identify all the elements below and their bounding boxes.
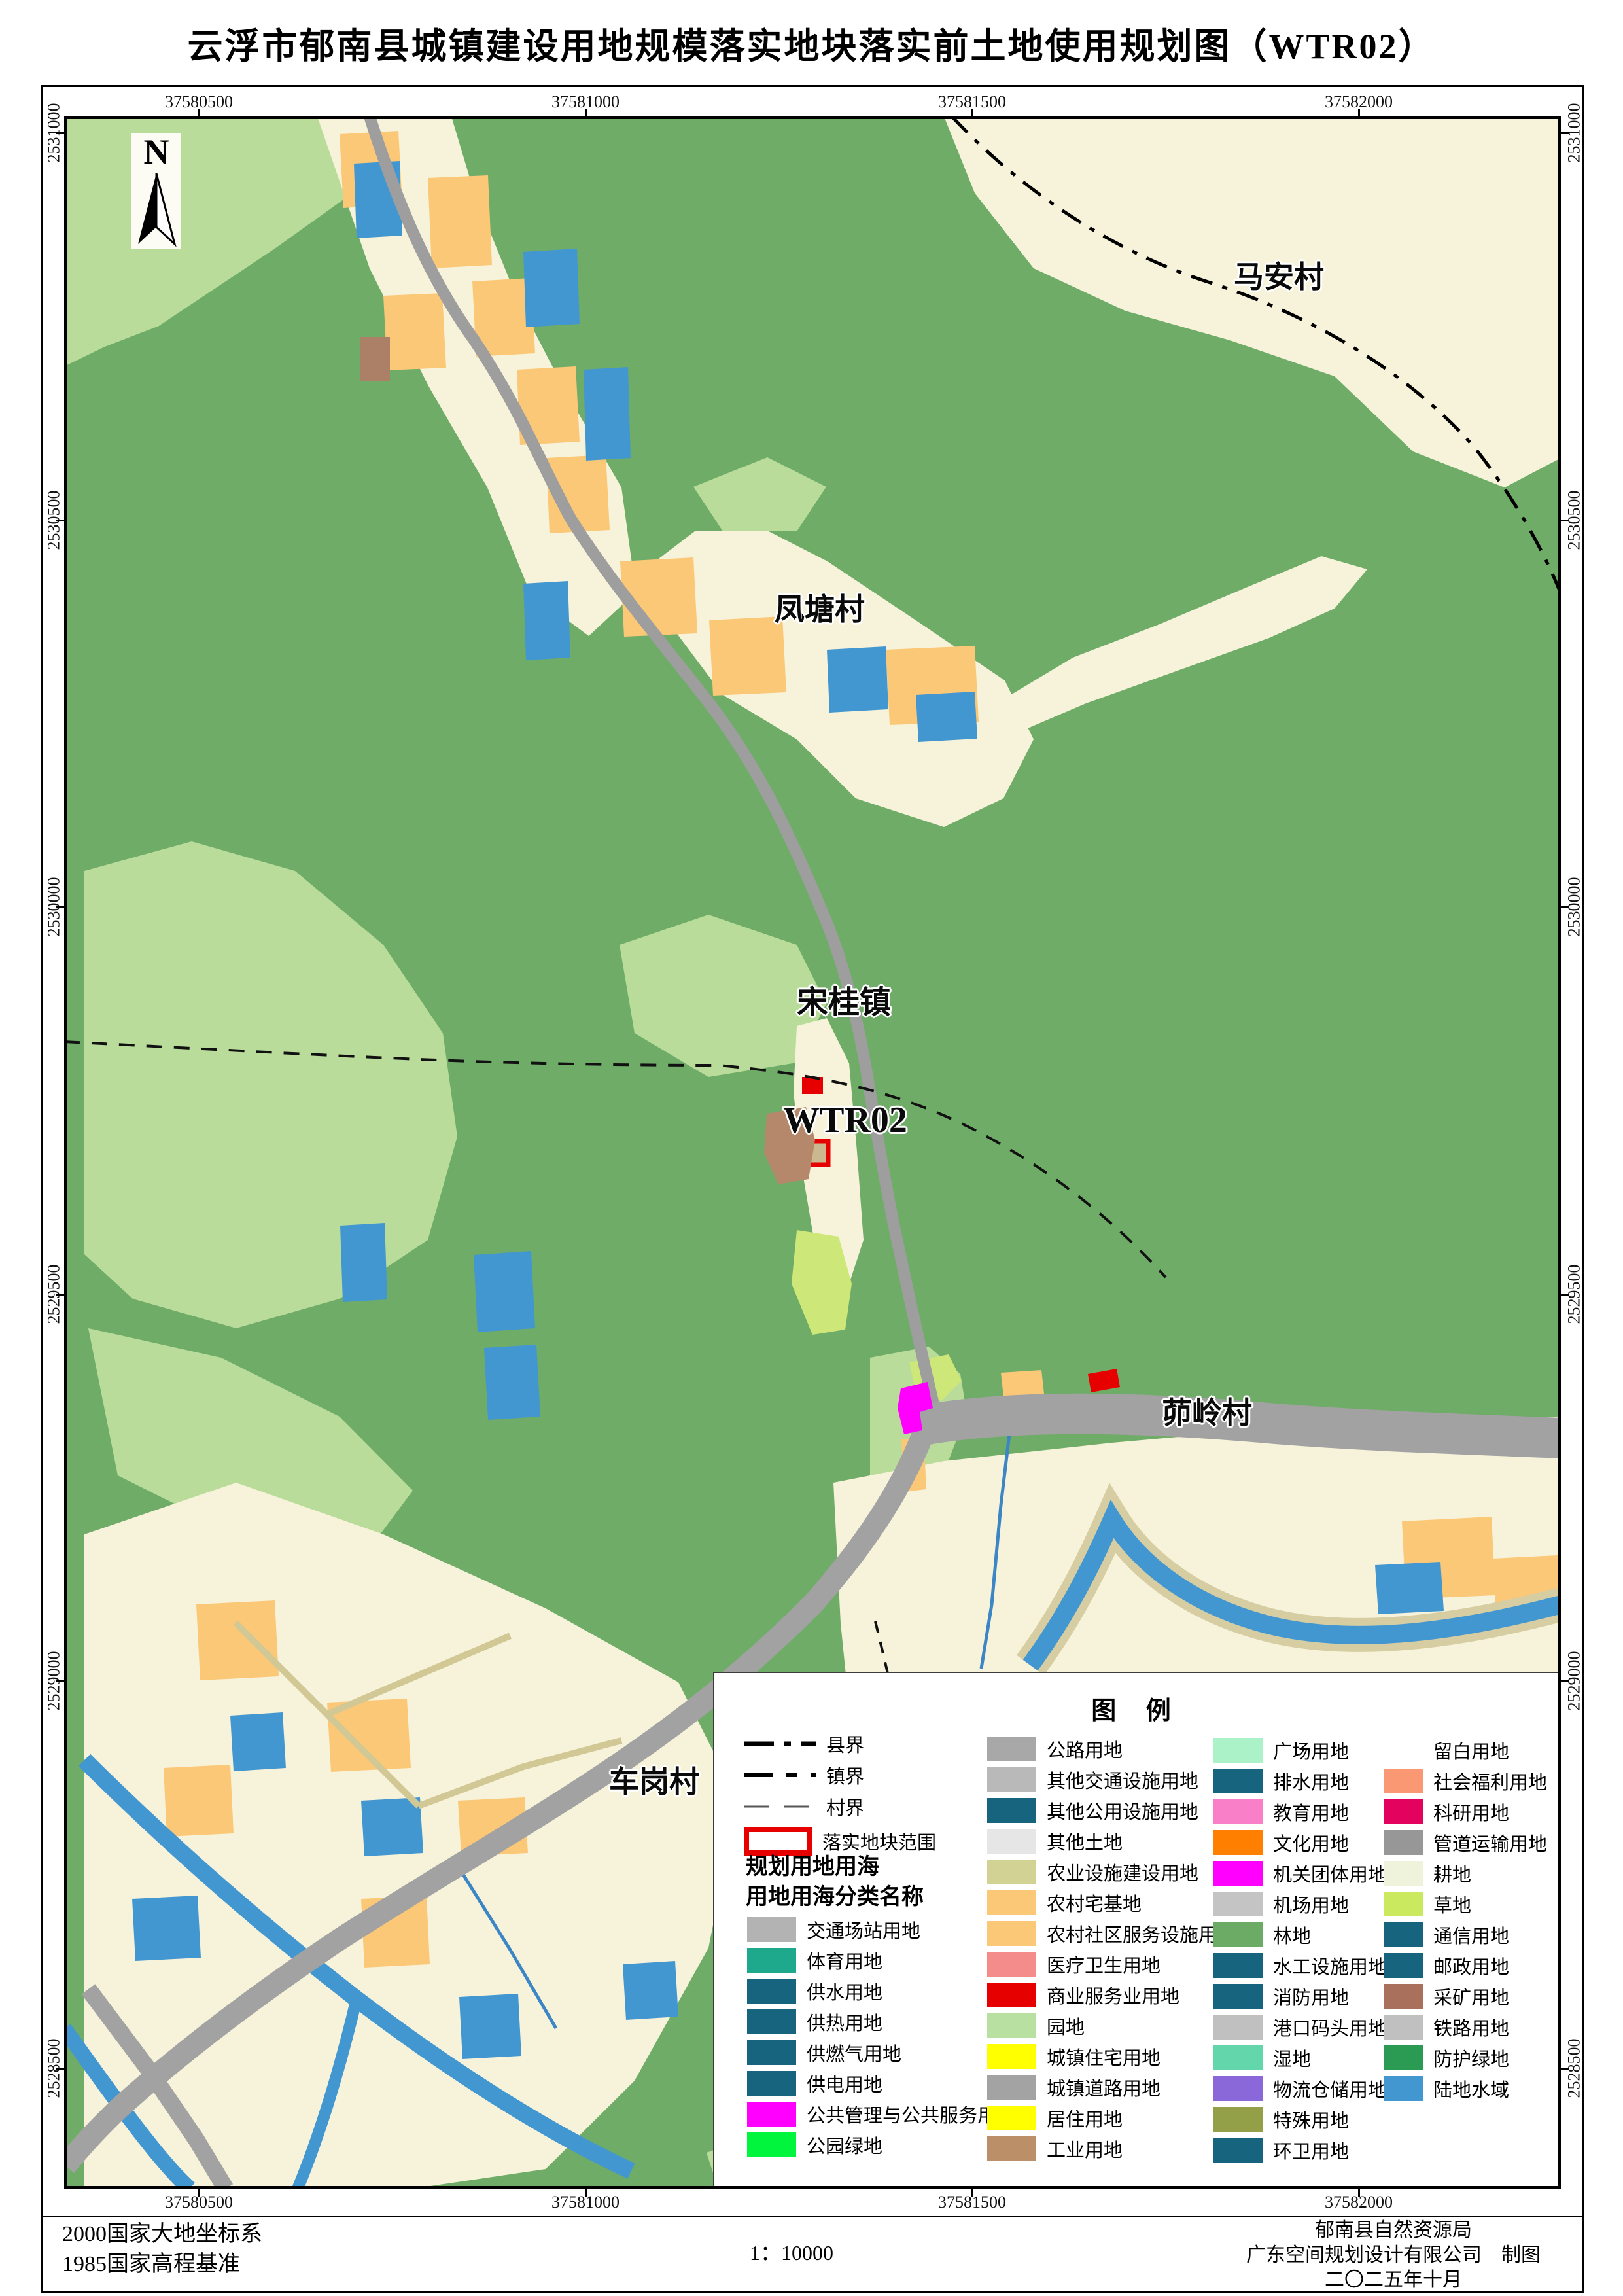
- legend-item-label: 物流仓储用地: [1273, 2075, 1387, 2102]
- legend-item: 园地: [987, 2013, 1085, 2039]
- legend-swatch: [1213, 2045, 1263, 2070]
- legend-swatch: [1213, 1738, 1263, 1763]
- legend-item: 教育用地: [1213, 1799, 1349, 1825]
- legend-item: 工业用地: [987, 2136, 1123, 2162]
- town-boundary-symbol: [744, 1771, 816, 1779]
- village-boundary-symbol: [744, 1803, 816, 1810]
- legend-item: 其他公用设施用地: [987, 1797, 1198, 1824]
- legend-swatch: [1384, 2076, 1423, 2101]
- tick-mark: [1358, 109, 1360, 116]
- legend-swatch: [1213, 2107, 1263, 2132]
- legend-item-label: 广场用地: [1273, 1737, 1349, 1764]
- legend-swatch: [1384, 1769, 1423, 1793]
- legend-item: 铁路用地: [1384, 2014, 1509, 2040]
- legend-swatch: [987, 2106, 1036, 2130]
- legend-item: 农村宅基地: [987, 1890, 1142, 1916]
- legend-item: 机关团体用地: [1213, 1860, 1387, 1886]
- tick-mark: [56, 1680, 64, 1682]
- legend-item: 公园绿地: [747, 2132, 882, 2158]
- legend-item: 商业服务业用地: [987, 1982, 1179, 2008]
- legend-item: 交通场站用地: [747, 1916, 920, 1943]
- place-label-fengtang: 凤塘村: [775, 586, 865, 629]
- place-label-songgui: 宋桂镇: [797, 976, 891, 1022]
- legend-item: 文化用地: [1213, 1829, 1349, 1856]
- legend-item-label: 其他土地: [1047, 1828, 1123, 1855]
- legend-swatch: [1213, 1861, 1263, 1886]
- legend-item: 留白用地: [1384, 1737, 1509, 1763]
- legend-item-label: 机场用地: [1273, 1890, 1349, 1918]
- legend-swatch: [1213, 1984, 1263, 2009]
- legend-swatch: [1384, 2015, 1423, 2040]
- legend-item: 居住用地: [987, 2105, 1123, 2131]
- tick-mark: [56, 906, 64, 908]
- tick-mark: [971, 109, 973, 116]
- tick-mark: [971, 2189, 973, 2197]
- legend-swatch: [1384, 1953, 1423, 1978]
- legend-panel: 图 例 县界镇界村界落实地块范围交通场站用地体育用地供水用地供热用地供燃气用地供…: [713, 1672, 1561, 2189]
- legend-item: 湿地: [1213, 2045, 1311, 2071]
- legend-item: 公共管理与公共服务用地: [747, 2101, 1015, 2127]
- legend-item-label: 教育用地: [1273, 1798, 1349, 1826]
- legend-section-header-2: 用地用海分类名称: [746, 1879, 924, 1911]
- legend-swatch: [1213, 2138, 1263, 2163]
- legend-swatch: [987, 2044, 1036, 2069]
- legend-swatch: [1213, 2076, 1263, 2101]
- legend-item: 农村社区服务设施用地: [987, 1920, 1236, 1947]
- legend-item-label: 居住用地: [1047, 2104, 1123, 2132]
- legend-item-label: 农业设施建设用地: [1047, 1858, 1198, 1886]
- legend-swatch: [1384, 1984, 1423, 2009]
- legend-item: 供燃气用地: [747, 2040, 901, 2066]
- legend-swatch: [987, 1737, 1036, 1761]
- legend-item-label: 体育用地: [807, 1947, 882, 1974]
- legend-swatch: [1213, 1922, 1263, 1947]
- legend-item-label: 邮政用地: [1433, 1952, 1509, 1979]
- legend-item-label: 草地: [1433, 1890, 1471, 1918]
- legend-item: 县界: [744, 1731, 864, 1757]
- legend-item-label: 供电用地: [807, 2070, 882, 2097]
- legend-swatch: [1384, 1738, 1423, 1763]
- legend-item-label: 留白用地: [1433, 1737, 1509, 1764]
- legend-item: 其他土地: [987, 1828, 1123, 1854]
- legend-swatch: [747, 2132, 796, 2157]
- brown-parcel-north: [360, 337, 390, 381]
- legend-swatch: [1213, 1799, 1263, 1824]
- legend-item-label: 供热用地: [807, 2008, 882, 2036]
- legend-item: 农业设施建设用地: [987, 1859, 1198, 1885]
- legend-swatch: [747, 1917, 796, 1942]
- legend-item-label: 耕地: [1433, 1860, 1471, 1887]
- legend-item-label: 商业服务业用地: [1047, 1981, 1179, 2009]
- tick-mark: [1561, 906, 1569, 908]
- north-arrow-icon: [131, 171, 181, 248]
- legend-item: 村界: [744, 1793, 864, 1820]
- legend-swatch: [987, 1952, 1036, 1977]
- legend-item-label: 公路用地: [1047, 1735, 1123, 1763]
- legend-swatch: [987, 1890, 1036, 1915]
- credit-line-3: 二〇二五年十月: [1197, 2268, 1590, 2293]
- tick-mark: [198, 109, 200, 116]
- legend-section-header-1: 规划用地用海: [746, 1848, 879, 1881]
- legend-item-label: 消防用地: [1273, 1983, 1349, 2010]
- credit-line-1: 郁南县自然资源局: [1197, 2218, 1590, 2243]
- legend-item: 管道运输用地: [1384, 1829, 1547, 1856]
- legend-item-label: 林地: [1273, 1921, 1311, 1949]
- tick-mark: [1358, 2189, 1360, 2197]
- legend-item: 港口码头用地: [1213, 2014, 1387, 2040]
- legend-item-label: 防护绿地: [1433, 2044, 1509, 2072]
- legend-swatch: [747, 2009, 796, 2034]
- legend-item-label: 环卫用地: [1273, 2136, 1349, 2164]
- legend-swatch: [1213, 1953, 1263, 1978]
- legend-item: 城镇道路用地: [987, 2074, 1161, 2100]
- legend-item: 耕地: [1384, 1860, 1471, 1886]
- legend-swatch: [1384, 1799, 1423, 1824]
- legend-swatch: [1213, 1830, 1263, 1855]
- legend-swatch: [987, 1921, 1036, 1946]
- place-label-wtr02: WTR02: [783, 1099, 907, 1141]
- legend-swatch: [1213, 1769, 1263, 1793]
- legend-item: 陆地水域: [1384, 2075, 1509, 2102]
- legend-item: 体育用地: [747, 1947, 882, 1973]
- place-label-chegang: 车岗村: [609, 1758, 699, 1801]
- legend-item: 镇界: [744, 1762, 864, 1788]
- legend-swatch: [987, 2075, 1036, 2100]
- legend-item: 防护绿地: [1384, 2045, 1509, 2071]
- footer-divider: [41, 2216, 1582, 2217]
- legend-item: 排水用地: [1213, 1768, 1349, 1794]
- page-title: 云浮市郁南县城镇建设用地规模落实地块落实前土地使用规划图（WTR02）: [0, 17, 1623, 69]
- north-label: N: [131, 133, 181, 171]
- legend-item-label: 陆地水域: [1433, 2075, 1509, 2102]
- legend-item-label: 农村社区服务设施用地: [1047, 1920, 1236, 1947]
- legend-item: 采矿用地: [1384, 1983, 1509, 2009]
- legend-item: 消防用地: [1213, 1983, 1349, 2009]
- legend-item: 供水用地: [747, 1978, 882, 2004]
- legend-swatch: [987, 2013, 1036, 2038]
- legend-item: 医疗卫生用地: [987, 1951, 1161, 1977]
- legend-swatch: [747, 2102, 796, 2127]
- legend-item-label: 医疗卫生用地: [1047, 1951, 1161, 1978]
- legend-item-label: 园地: [1047, 2012, 1085, 2040]
- legend-item: 城镇住宅用地: [987, 2043, 1161, 2070]
- legend-swatch: [747, 1948, 796, 1973]
- legend-item: 广场用地: [1213, 1737, 1349, 1763]
- tick-mark: [1561, 2068, 1569, 2070]
- legend-item: 环卫用地: [1213, 2137, 1349, 2163]
- tick-mark: [56, 520, 64, 521]
- legend-item-label: 特殊用地: [1273, 2106, 1349, 2133]
- legend-item-label: 科研用地: [1433, 1798, 1509, 1826]
- tick-mark: [56, 132, 64, 134]
- map-sheet: 云浮市郁南县城镇建设用地规模落实地块落实前土地使用规划图（WTR02）: [0, 0, 1623, 2296]
- legend-item-label: 采矿用地: [1433, 1983, 1509, 2010]
- legend-swatch: [1213, 2015, 1263, 2040]
- legend-item-label: 公共管理与公共服务用地: [807, 2100, 1015, 2128]
- legend-item: 供热用地: [747, 2009, 882, 2035]
- tick-mark: [1561, 1294, 1569, 1296]
- tick-mark: [585, 109, 587, 116]
- legend-item: 草地: [1384, 1891, 1471, 1917]
- legend-swatch: [1384, 1830, 1423, 1855]
- legend-item-label: 文化用地: [1273, 1829, 1349, 1856]
- legend-swatch: [1384, 2045, 1423, 2070]
- legend-title: 图 例: [714, 1690, 1560, 1726]
- legend-swatch: [1213, 1892, 1263, 1916]
- legend-swatch: [747, 1979, 796, 2004]
- legend-swatch: [987, 1829, 1036, 1854]
- legend-item: 机场用地: [1213, 1891, 1349, 1917]
- legend-item: 供电用地: [747, 2070, 882, 2096]
- legend-swatch: [747, 2040, 796, 2065]
- legend-item-label: 其他交通设施用地: [1047, 1766, 1198, 1793]
- legend-item: 其他交通设施用地: [987, 1767, 1198, 1793]
- legend-item-label: 城镇住宅用地: [1047, 2043, 1161, 2070]
- legend-item-label: 供燃气用地: [807, 2039, 901, 2066]
- legend-item-label: 村界: [826, 1793, 864, 1820]
- legend-item: 水工设施用地: [1213, 1952, 1387, 1979]
- legend-item-label: 公园绿地: [807, 2131, 882, 2159]
- legend-item: 邮政用地: [1384, 1952, 1509, 1979]
- tick-mark: [198, 2189, 200, 2197]
- tick-mark: [1561, 1680, 1569, 1682]
- legend-item-label: 湿地: [1273, 2044, 1311, 2072]
- legend-item: 科研用地: [1384, 1799, 1509, 1825]
- legend-item: 通信用地: [1384, 1922, 1509, 1948]
- credit-block: 郁南县自然资源局 广东空间规划设计有限公司 制图 二〇二五年十月: [1197, 2218, 1590, 2293]
- legend-item-label: 机关团体用地: [1273, 1860, 1387, 1887]
- tick-mark: [56, 1294, 64, 1296]
- legend-item-label: 工业用地: [1047, 2135, 1123, 2163]
- legend-item: 公路用地: [987, 1736, 1123, 1762]
- tick-mark: [1561, 520, 1569, 521]
- legend-item-label: 镇界: [826, 1761, 864, 1789]
- tick-mark: [1561, 132, 1569, 134]
- legend-item: 社会福利用地: [1384, 1768, 1547, 1794]
- legend-item-label: 交通场站用地: [807, 1916, 920, 1943]
- legend-item-label: 城镇道路用地: [1047, 2074, 1161, 2101]
- tick-mark: [56, 2068, 64, 2070]
- legend-item-label: 供水用地: [807, 1977, 882, 2005]
- legend-swatch: [1384, 1861, 1423, 1886]
- legend-item-label: 县界: [826, 1730, 864, 1757]
- legend-swatch: [987, 2136, 1036, 2161]
- legend-swatch: [987, 1983, 1036, 2007]
- legend-item: 林地: [1213, 1922, 1311, 1948]
- legend-item-label: 其他公用设施用地: [1047, 1797, 1198, 1824]
- legend-item-label: 排水用地: [1273, 1767, 1349, 1795]
- legend-swatch: [987, 1798, 1036, 1823]
- credit-line-2: 广东空间规划设计有限公司 制图: [1197, 2243, 1590, 2268]
- legend-swatch: [987, 1767, 1036, 1792]
- legend-item-label: 社会福利用地: [1433, 1767, 1547, 1795]
- datum-block: 2000国家大地坐标系 1985国家高程基准: [62, 2219, 262, 2280]
- legend-swatch: [747, 2071, 796, 2096]
- tick-mark: [585, 2189, 587, 2197]
- legend-item: 物流仓储用地: [1213, 2075, 1387, 2102]
- north-arrow: N: [131, 133, 181, 249]
- legend-swatch: [1384, 1892, 1423, 1916]
- legend-item-label: 港口码头用地: [1273, 2013, 1387, 2041]
- datum-line-1: 2000国家大地坐标系: [62, 2219, 262, 2250]
- legend-item-label: 水工设施用地: [1273, 1952, 1387, 1979]
- place-label-maan: 马安村: [1234, 253, 1324, 296]
- legend-item-label: 管道运输用地: [1433, 1829, 1547, 1856]
- datum-line-2: 1985国家高程基准: [62, 2250, 262, 2280]
- legend-item: 特殊用地: [1213, 2106, 1349, 2132]
- place-label-maoling: 茆岭村: [1162, 1389, 1252, 1432]
- scale-text: 1：10000: [693, 2236, 890, 2267]
- legend-item-label: 农村宅基地: [1047, 1889, 1142, 1916]
- legend-item-label: 铁路用地: [1433, 2013, 1509, 2041]
- legend-swatch: [987, 1860, 1036, 1884]
- county-boundary-symbol: [744, 1740, 816, 1748]
- legend-item-label: 通信用地: [1433, 1921, 1509, 1949]
- legend-swatch: [1384, 1922, 1423, 1947]
